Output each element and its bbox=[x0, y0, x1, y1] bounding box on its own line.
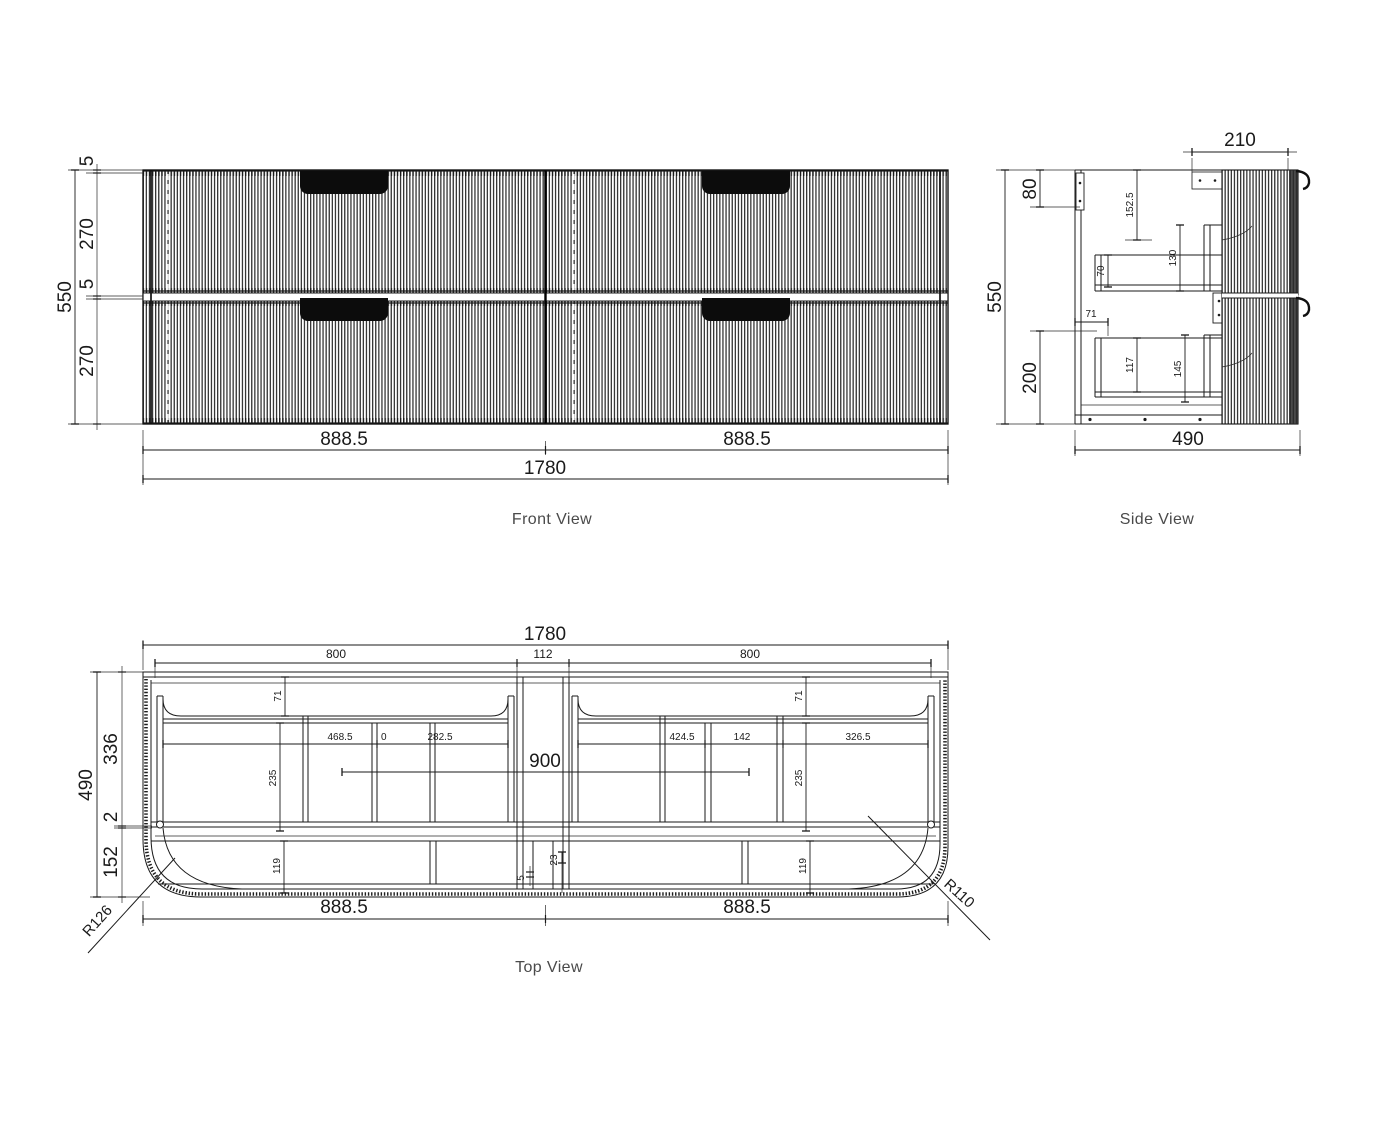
top-view: 1780 800 112 800 336 2 152 490 bbox=[76, 624, 990, 976]
top-dim-opening-right: 800 bbox=[740, 647, 760, 661]
top-dimensions: 1780 800 112 800 336 2 152 490 bbox=[76, 624, 990, 953]
top-cabinet-drawing bbox=[143, 672, 948, 897]
front-view-label: Front View bbox=[512, 511, 592, 528]
side-dim-bottom-section: 200 bbox=[1020, 362, 1041, 394]
drawer-handle-top-right bbox=[702, 171, 790, 194]
side-dim-top-inset: 210 bbox=[1224, 130, 1256, 151]
top-dim-right-span-a: 424.5 bbox=[669, 732, 694, 743]
top-dim-left-span-c: 282.5 bbox=[427, 732, 452, 743]
side-dim-top-drawer-back: 70 bbox=[1096, 265, 1107, 277]
front-dim-overall-height: 550 bbox=[55, 281, 76, 313]
top-dim-corner-radius-right: R110 bbox=[940, 876, 977, 912]
side-fluted-front-bottom bbox=[1222, 297, 1298, 424]
wall-rail-bracket-top bbox=[1076, 173, 1084, 210]
top-dim-opening-left: 800 bbox=[326, 647, 346, 661]
top-fluted-edge bbox=[146, 679, 945, 894]
front-dim-overall-width: 1780 bbox=[524, 458, 566, 479]
top-dim-back-gap-right: 71 bbox=[794, 690, 805, 702]
top-dim-left-span-a: 468.5 bbox=[327, 732, 352, 743]
front-dim-top-drawer: 270 bbox=[77, 218, 98, 250]
front-dim-half-left: 888.5 bbox=[320, 429, 368, 450]
top-dim-drawer-depth-right: 235 bbox=[794, 769, 805, 786]
side-dim-wall-rail: 80 bbox=[1020, 178, 1041, 199]
side-dim-base-offset: 71 bbox=[1085, 309, 1097, 320]
front-dim-half-right: 888.5 bbox=[723, 429, 771, 450]
top-dim-front-small-a: 23 bbox=[549, 854, 560, 866]
drawer-handle-bottom-right bbox=[702, 298, 790, 321]
side-dim-overall-depth: 490 bbox=[1172, 429, 1204, 450]
side-dim-top-drawer-front: 130 bbox=[1168, 249, 1179, 266]
side-dim-bottom-drawer-front: 145 bbox=[1173, 360, 1184, 377]
front-dim-top-gap: 5 bbox=[77, 156, 98, 167]
top-dim-overall-depth: 490 bbox=[76, 769, 97, 801]
side-view: 210 80 550 200 152.5 70 130 71 117 145 bbox=[985, 130, 1309, 528]
top-dim-half-right: 888.5 bbox=[723, 897, 771, 918]
top-dim-back-gap-left: 71 bbox=[273, 690, 284, 702]
side-dim-bottom-drawer-back: 117 bbox=[1125, 357, 1136, 373]
top-dim-front-depth-left: 119 bbox=[272, 858, 283, 874]
drawer-handle-top-left bbox=[300, 171, 388, 194]
top-dim-front-section: 152 bbox=[101, 846, 122, 878]
top-dim-right-span-c: 326.5 bbox=[845, 732, 870, 743]
top-dim-center-gap: 112 bbox=[533, 647, 552, 661]
technical-drawing-canvas: 550 5 270 5 270 888.5 888.5 1780 Front V… bbox=[0, 0, 1400, 1129]
top-view-label: Top View bbox=[515, 959, 583, 976]
front-cabinet-drawing bbox=[143, 170, 948, 424]
top-dim-half-left: 888.5 bbox=[320, 897, 368, 918]
side-view-label: Side View bbox=[1120, 511, 1195, 528]
drawer-runner-bracket bbox=[1192, 172, 1222, 189]
top-dim-right-span-b: 142 bbox=[734, 732, 751, 743]
hinge-pin-right bbox=[928, 821, 935, 828]
side-cabinet-drawing bbox=[1075, 170, 1309, 424]
top-dim-left-span-b: 0 bbox=[381, 732, 387, 743]
vanity-drawing: 550 5 270 5 270 888.5 888.5 1780 Front V… bbox=[0, 0, 1400, 1129]
top-dim-drawer-depth-left: 235 bbox=[268, 769, 279, 786]
top-outline bbox=[143, 672, 948, 897]
side-dim-runner-drop: 152.5 bbox=[1125, 192, 1136, 217]
top-dim-back-section: 336 bbox=[101, 733, 122, 765]
front-dim-bottom-drawer: 270 bbox=[77, 345, 98, 377]
top-dim-corner-radius-left: R126 bbox=[79, 902, 116, 940]
front-view: 550 5 270 5 270 888.5 888.5 1780 Front V… bbox=[55, 156, 948, 528]
drawer-handle-bottom-left bbox=[300, 298, 388, 321]
top-dim-basin-cutout: 900 bbox=[529, 751, 561, 772]
top-dim-front-depth-right: 119 bbox=[798, 858, 809, 874]
top-dim-front-small-b: 5 bbox=[516, 875, 527, 881]
hinge-pin-left bbox=[157, 821, 164, 828]
front-dim-mid-gap: 5 bbox=[77, 279, 98, 290]
top-dim-overall-width: 1780 bbox=[524, 624, 566, 645]
side-dim-overall-height: 550 bbox=[985, 281, 1006, 313]
top-dim-rail: 2 bbox=[101, 812, 122, 823]
side-fluted-front-top bbox=[1222, 170, 1298, 295]
